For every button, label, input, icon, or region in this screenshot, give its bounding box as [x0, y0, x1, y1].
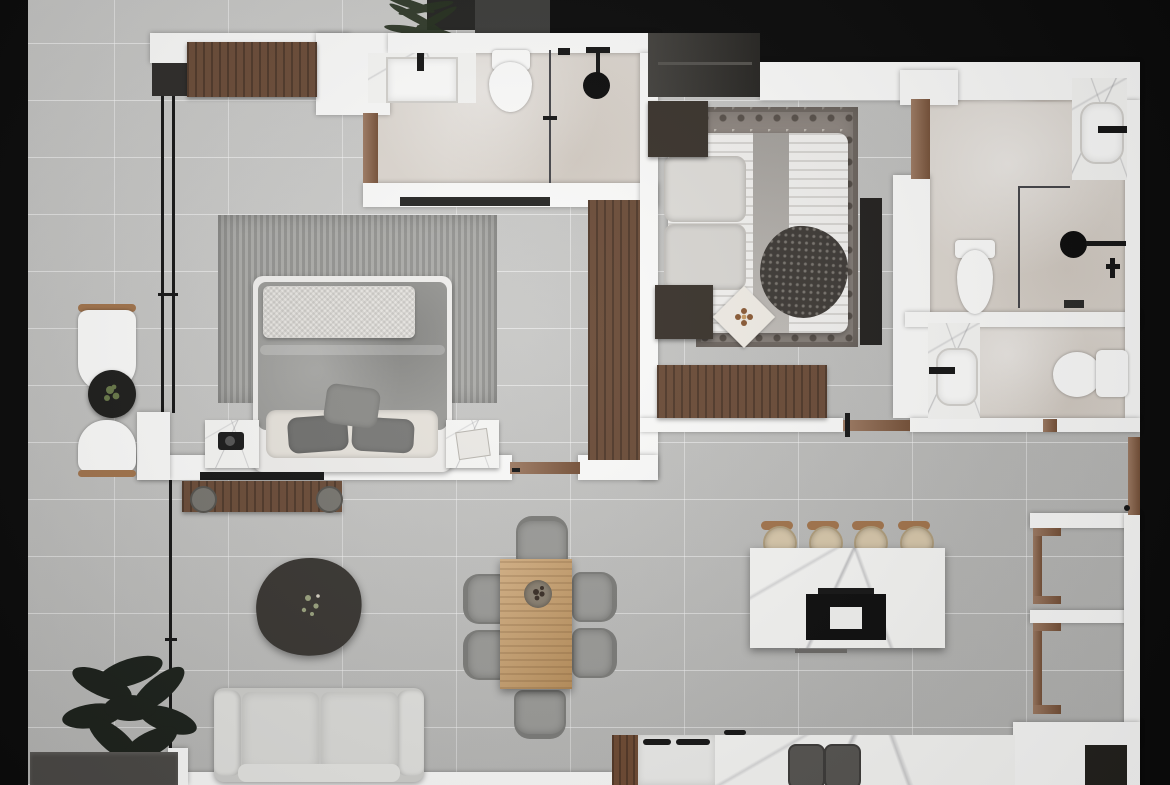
wall-corner-dark [152, 63, 187, 96]
ensuite-floor-drain [1064, 300, 1084, 308]
dining-chair-south [514, 690, 566, 739]
ensuite-shower-glass-h [1018, 186, 1070, 188]
duvet-fold-highlight [260, 345, 445, 355]
wall-bedroom2-ensuite [893, 175, 930, 418]
ensuite-shower-glass-v [1018, 186, 1020, 308]
bath-top-faucet [417, 53, 424, 71]
kitchen-counter [715, 735, 1015, 785]
bath-top-rain-shower-head [583, 72, 610, 99]
bedroom2-door-handle [845, 413, 850, 437]
dining-chair-east-1 [572, 572, 617, 622]
guest-toilet [1053, 352, 1101, 397]
roof-block-gray [475, 0, 550, 35]
entry-doormat [1085, 745, 1127, 785]
niche2-trim-left [1033, 631, 1042, 705]
window-connector [158, 293, 178, 296]
niche2-trim-bottom [1033, 705, 1061, 714]
sketchbook-decor [455, 428, 491, 460]
niche1-trim-top [1033, 528, 1061, 536]
bedroom2-wardrobe [648, 33, 760, 97]
refrigerator-handle-left [643, 739, 671, 745]
master-door-threshold [510, 462, 580, 474]
ensuite-shower-arm [1086, 241, 1126, 246]
bedroom2-pillow-bottom [664, 224, 746, 290]
master-pillow-accent [322, 382, 381, 429]
island-shadow-line [795, 649, 847, 653]
ensuite-door [911, 99, 930, 179]
bath-top-shower-mixer [586, 47, 610, 53]
bedroom2-nightstand-bottom [655, 285, 713, 339]
console-speaker-left [190, 486, 217, 513]
cooktop-inner [830, 607, 862, 629]
bath-top-mixer-small [558, 48, 570, 55]
guest-sink [936, 348, 978, 406]
camera-lens [225, 436, 235, 446]
bedroom2-tv-panel [860, 198, 882, 345]
dining-decor-berries [524, 580, 552, 608]
ensuite-faucet [1098, 126, 1127, 133]
wall-niche-right [1124, 513, 1140, 745]
niche1-trim-left [1033, 536, 1042, 596]
window-mullion-upper-a [161, 95, 164, 413]
master-door-hinge [512, 468, 520, 472]
bedroom2-pillow-top [664, 156, 746, 222]
wall-hall-south-east [910, 418, 1140, 432]
entry-threshold [1043, 419, 1057, 432]
bedroom2-nightstand-top [648, 101, 708, 157]
dining-table [500, 559, 572, 689]
kitchen-sink-left [788, 744, 825, 785]
closet-shadow-strip [400, 197, 550, 206]
sofa-arm-left [214, 690, 241, 776]
master-knit-throw [263, 286, 415, 338]
balcony-bench [30, 752, 178, 785]
kitchen-pot-handle [724, 730, 746, 735]
counter-wood-edge [612, 735, 638, 785]
exterior-void-right [1140, 0, 1170, 785]
refrigerator-handle-right [676, 739, 710, 745]
ensuite-rain-shower-head [1060, 231, 1087, 258]
sofa-cushion-right [321, 692, 398, 770]
bedroom2-door-threshold [843, 420, 910, 431]
bedroom2-wardrobe-rail [658, 62, 752, 65]
lounge-chair-2 [78, 420, 136, 472]
side-table-plant [96, 378, 128, 410]
niche2-trim-top [1033, 623, 1061, 631]
master-wardrobe [187, 42, 317, 97]
bedroom2-dresser [657, 365, 827, 418]
tv-screen [200, 472, 324, 480]
lounge-chair-2-base [78, 470, 136, 477]
coffee-table-decor [288, 584, 334, 626]
guest-faucet [929, 367, 955, 374]
kitchen-sink-right [824, 744, 861, 785]
console-speaker-right [316, 486, 343, 513]
sofa-back [238, 764, 400, 782]
diamond-decor-flowers [728, 301, 760, 333]
window-mullion-upper-b [172, 95, 175, 413]
ensuite-sink [1080, 102, 1124, 164]
entry-door-handle [1124, 505, 1130, 511]
niche1-trim-bottom [1033, 596, 1061, 604]
exterior-void-left [0, 0, 28, 785]
bath-top-door [363, 113, 378, 183]
floor-plan-canvas [0, 0, 1170, 785]
bath-top-shower-handle [543, 116, 557, 120]
sofa-arm-right [397, 690, 424, 776]
guest-toilet-tank [1096, 350, 1128, 397]
ensuite-shower-mixer [1106, 264, 1120, 269]
dining-chair-east-2 [572, 628, 617, 678]
master-side-dresser [588, 200, 640, 460]
wall-master-sw-corner [137, 412, 170, 480]
entry-door [1128, 437, 1140, 515]
wall-hall-south-west [640, 418, 843, 432]
sofa-cushion-left [242, 692, 319, 770]
